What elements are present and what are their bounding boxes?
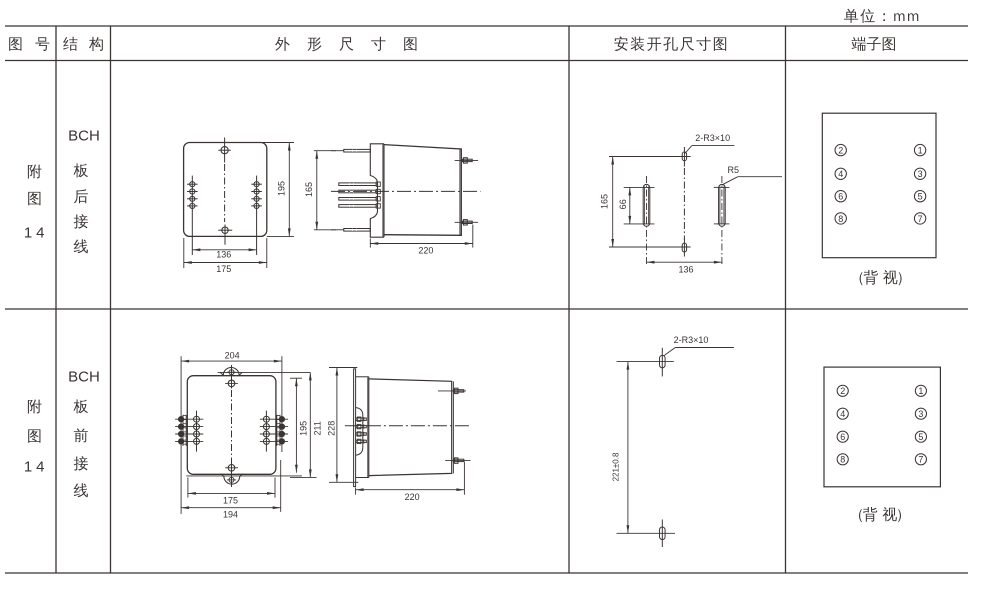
svg-text:5: 5 <box>918 432 923 442</box>
svg-text:175: 175 <box>223 495 238 505</box>
svg-text:5: 5 <box>918 192 923 202</box>
svg-text:165: 165 <box>600 194 610 209</box>
svg-text:2-R3×10: 2-R3×10 <box>695 133 730 143</box>
svg-text:228: 228 <box>326 421 336 436</box>
svg-text:175: 175 <box>216 264 231 274</box>
svg-text:7: 7 <box>918 214 923 224</box>
svg-text:66: 66 <box>618 199 628 209</box>
svg-text:8: 8 <box>840 455 845 465</box>
svg-text:2-R3×10: 2-R3×10 <box>674 335 709 345</box>
svg-text:BCH: BCH <box>68 369 100 386</box>
svg-text:194: 194 <box>223 509 238 519</box>
svg-text:220: 220 <box>405 492 420 502</box>
svg-text:4: 4 <box>838 169 843 179</box>
svg-text:2: 2 <box>838 146 843 156</box>
svg-text:4: 4 <box>840 409 845 419</box>
svg-text:3: 3 <box>918 169 923 179</box>
svg-text:6: 6 <box>838 192 843 202</box>
svg-text:14: 14 <box>24 225 49 242</box>
svg-text:6: 6 <box>840 432 845 442</box>
svg-text:136: 136 <box>678 265 693 275</box>
svg-text:14: 14 <box>24 459 49 476</box>
svg-text:7: 7 <box>918 455 923 465</box>
svg-text:R5: R5 <box>728 165 740 175</box>
svg-text:220: 220 <box>418 245 433 255</box>
svg-text:1: 1 <box>918 146 923 156</box>
svg-text:2: 2 <box>840 386 845 396</box>
svg-text:BCH: BCH <box>68 128 100 145</box>
svg-text:165: 165 <box>304 182 314 197</box>
svg-text:195: 195 <box>298 421 308 436</box>
svg-text:136: 136 <box>216 250 231 260</box>
svg-text:195: 195 <box>276 181 286 196</box>
svg-text:211: 211 <box>313 421 323 435</box>
svg-text:8: 8 <box>838 214 843 224</box>
svg-text:204: 204 <box>225 350 240 360</box>
svg-text:221±0.8: 221±0.8 <box>611 452 620 481</box>
svg-text:1: 1 <box>918 386 923 396</box>
svg-text:3: 3 <box>918 409 923 419</box>
